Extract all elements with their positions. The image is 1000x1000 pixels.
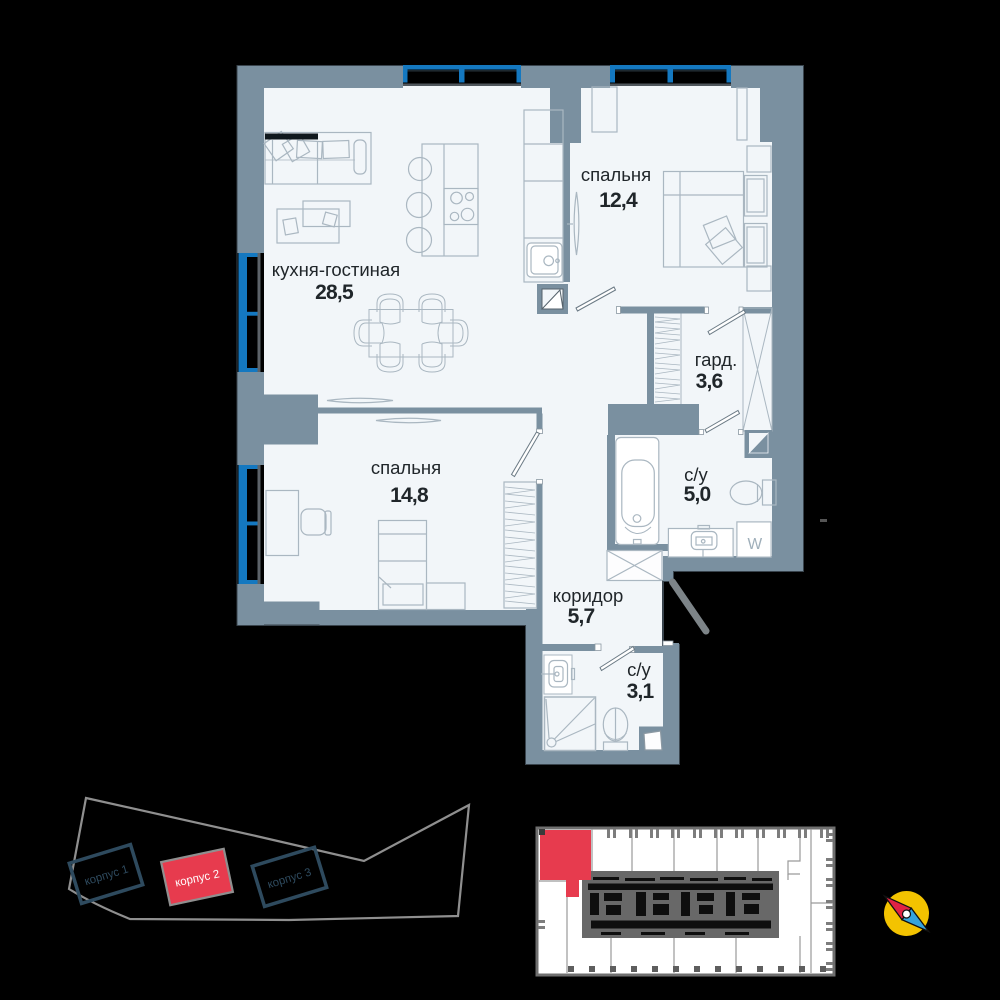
svg-text:3,6: 3,6 bbox=[696, 370, 723, 393]
svg-text:с/у: с/у bbox=[684, 464, 708, 485]
svg-text:14,8: 14,8 bbox=[390, 484, 429, 507]
svg-text:5,0: 5,0 bbox=[684, 483, 711, 506]
svg-text:5,7: 5,7 bbox=[568, 605, 595, 628]
svg-text:коридор: коридор bbox=[553, 585, 624, 606]
svg-text:спальня: спальня bbox=[371, 457, 441, 478]
svg-text:12,4: 12,4 bbox=[599, 189, 638, 212]
svg-text:гард.: гард. bbox=[695, 349, 737, 370]
svg-text:спальня: спальня bbox=[581, 164, 651, 185]
svg-text:28,5: 28,5 bbox=[315, 281, 354, 304]
svg-text:с/у: с/у bbox=[627, 659, 651, 680]
svg-text:3,1: 3,1 bbox=[627, 680, 655, 703]
svg-text:W: W bbox=[748, 536, 763, 553]
svg-text:кухня-гостиная: кухня-гостиная bbox=[272, 259, 400, 280]
